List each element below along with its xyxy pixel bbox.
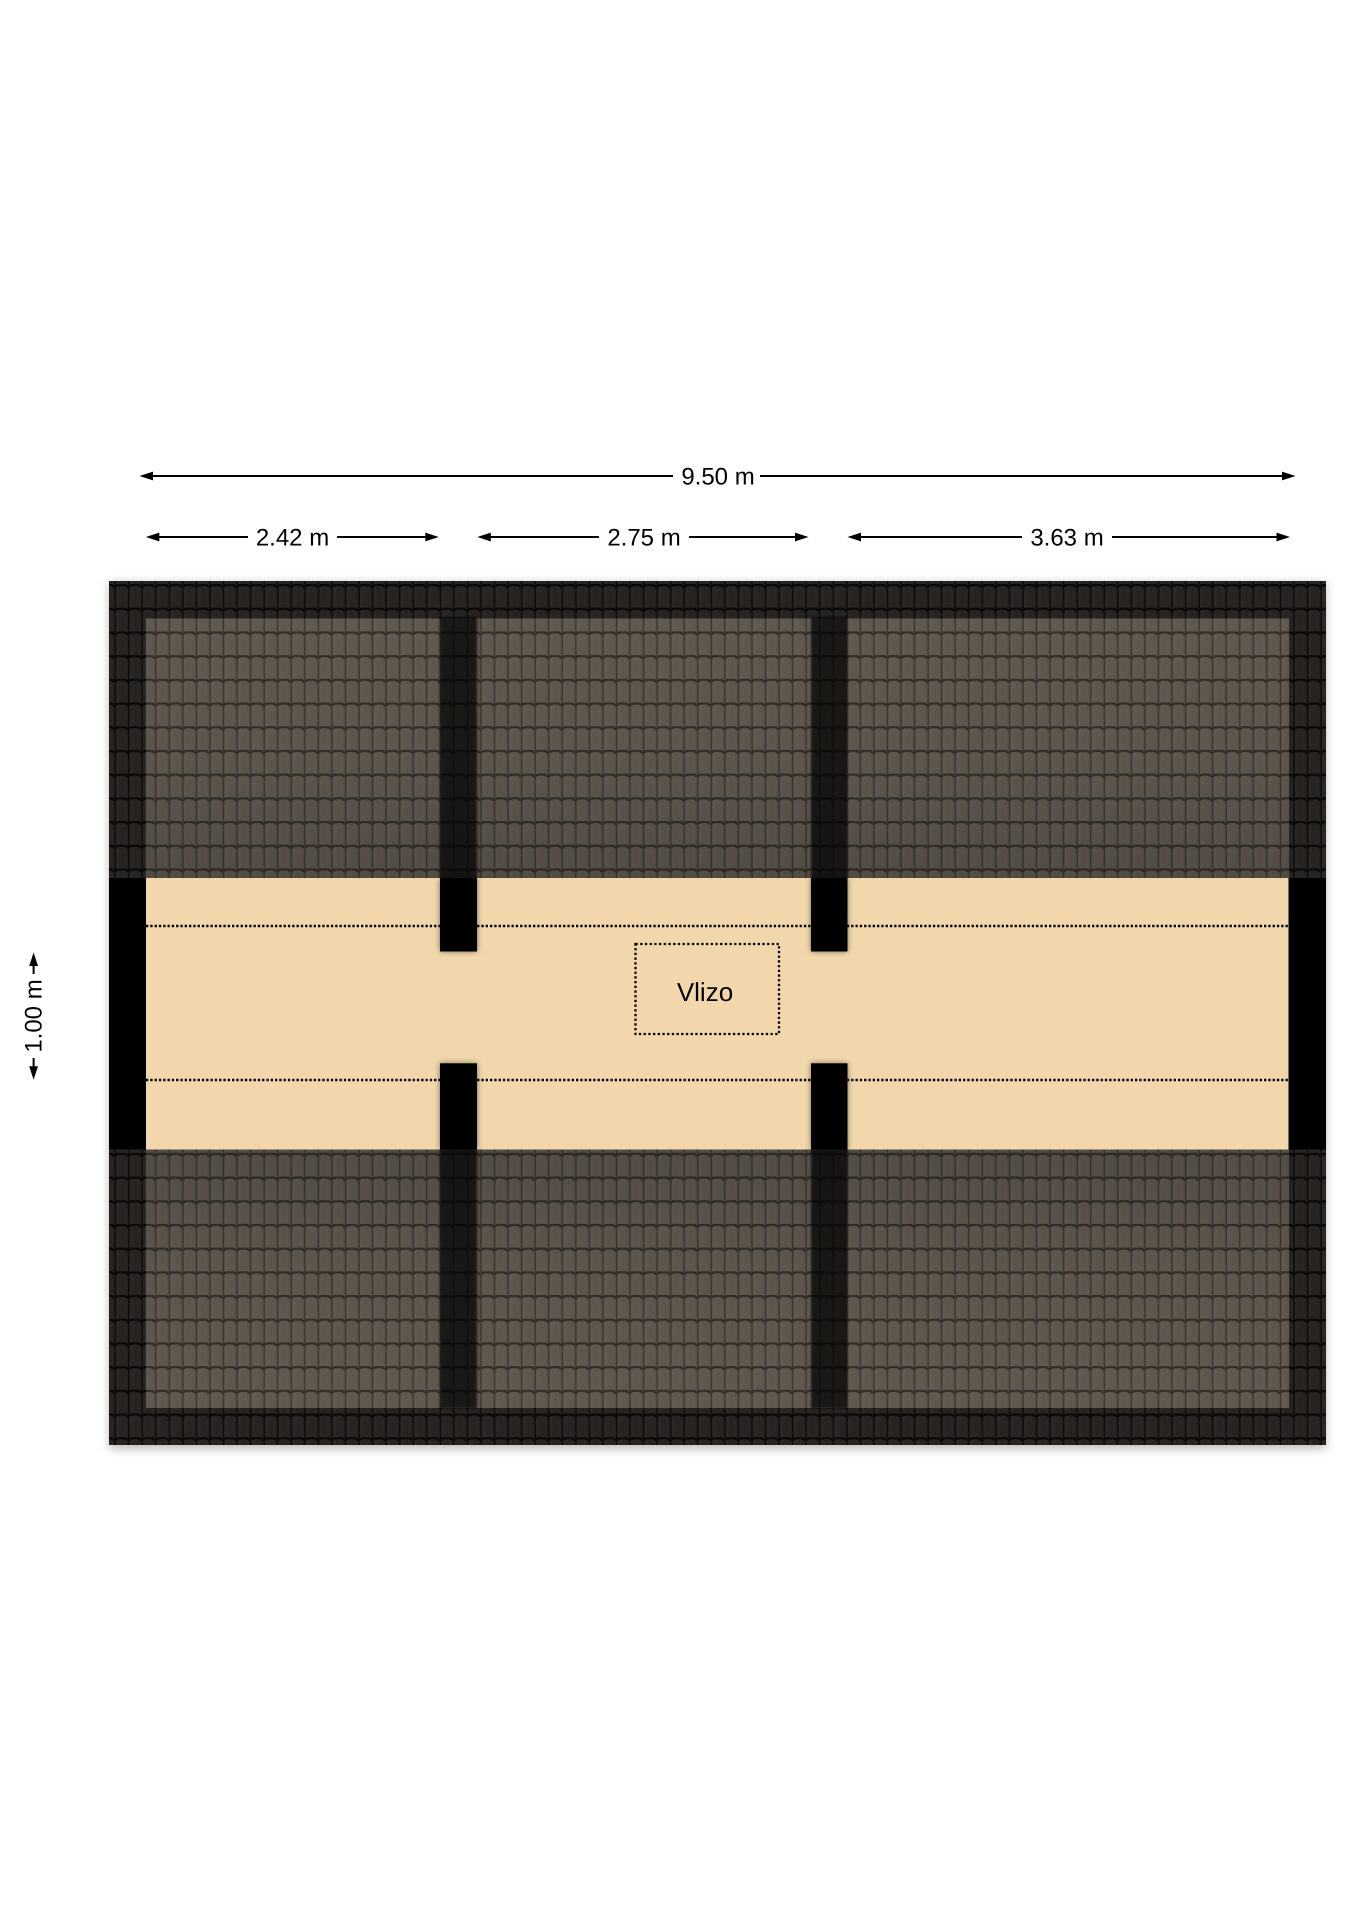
svg-text:Vlizo: Vlizo: [677, 977, 733, 1007]
svg-text:9.50 m: 9.50 m: [681, 464, 754, 491]
svg-text:3.63 m: 3.63 m: [1030, 525, 1103, 552]
svg-text:2.42 m: 2.42 m: [256, 525, 329, 552]
svg-text:1.00 m: 1.00 m: [21, 979, 48, 1052]
svg-text:2.75 m: 2.75 m: [607, 525, 680, 552]
